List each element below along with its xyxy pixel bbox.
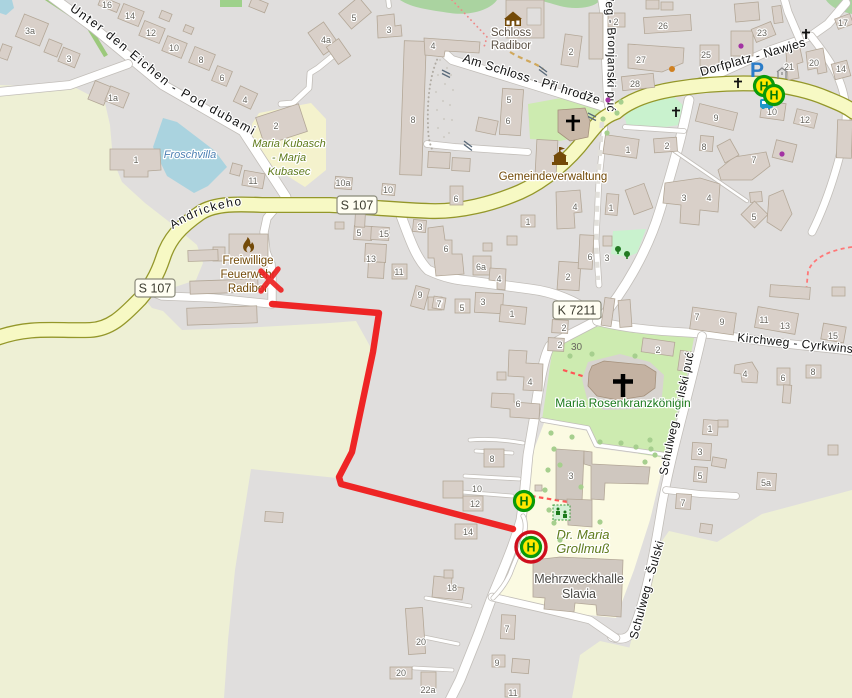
svg-text:Maria Rosenkranzkönigin: Maria Rosenkranzkönigin xyxy=(555,396,690,410)
svg-text:5: 5 xyxy=(356,228,361,238)
svg-text:5a: 5a xyxy=(761,478,771,488)
svg-text:2: 2 xyxy=(565,272,570,282)
svg-text:25: 25 xyxy=(701,50,711,60)
svg-text:15: 15 xyxy=(379,229,389,239)
svg-text:Gemeindeverwaltung: Gemeindeverwaltung xyxy=(499,171,608,183)
svg-text:S 107: S 107 xyxy=(341,199,374,213)
svg-text:6: 6 xyxy=(587,252,592,262)
svg-text:22a: 22a xyxy=(420,685,435,695)
svg-text:S 107: S 107 xyxy=(139,282,172,296)
svg-text:1: 1 xyxy=(525,217,530,227)
svg-text:6: 6 xyxy=(453,194,458,204)
svg-text:20: 20 xyxy=(416,637,426,647)
svg-text:8: 8 xyxy=(198,55,203,65)
svg-text:11: 11 xyxy=(759,315,768,325)
svg-text:23: 23 xyxy=(757,28,767,38)
svg-text:10: 10 xyxy=(169,43,179,53)
svg-text:3: 3 xyxy=(417,222,422,232)
svg-text:1: 1 xyxy=(608,203,613,213)
svg-text:7: 7 xyxy=(436,299,441,309)
svg-text:8: 8 xyxy=(489,454,494,464)
svg-text:4: 4 xyxy=(742,369,747,379)
svg-text:4: 4 xyxy=(527,377,532,387)
svg-text:6: 6 xyxy=(515,399,520,409)
svg-text:10a: 10a xyxy=(335,178,350,188)
svg-text:12: 12 xyxy=(146,28,156,38)
svg-text:1: 1 xyxy=(509,309,514,319)
svg-text:SchlossRadibor: SchlossRadibor xyxy=(491,27,532,52)
svg-text:8: 8 xyxy=(410,115,415,125)
svg-text:6: 6 xyxy=(780,373,785,383)
svg-text:28: 28 xyxy=(630,79,640,89)
svg-text:4a: 4a xyxy=(321,35,331,45)
svg-text:5: 5 xyxy=(351,13,356,23)
svg-text:14: 14 xyxy=(125,11,135,21)
svg-text:3: 3 xyxy=(66,54,71,64)
svg-text:1: 1 xyxy=(625,145,630,155)
svg-text:8: 8 xyxy=(701,142,706,152)
svg-text:5: 5 xyxy=(751,212,756,222)
svg-text:3a: 3a xyxy=(25,26,35,36)
svg-text:18: 18 xyxy=(447,583,457,593)
svg-text:3: 3 xyxy=(568,471,573,481)
svg-text:9: 9 xyxy=(719,317,724,327)
svg-text:4: 4 xyxy=(430,41,435,51)
svg-text:6a: 6a xyxy=(476,262,486,272)
svg-text:10: 10 xyxy=(383,185,393,195)
svg-text:20: 20 xyxy=(809,58,819,68)
svg-text:7: 7 xyxy=(504,624,509,634)
svg-text:4: 4 xyxy=(242,95,247,105)
svg-text:Dr. MariaGrollmuß: Dr. MariaGrollmuß xyxy=(556,527,610,556)
svg-text:17: 17 xyxy=(838,18,848,28)
svg-text:2: 2 xyxy=(613,17,618,27)
svg-text:6: 6 xyxy=(219,73,224,83)
svg-text:H: H xyxy=(519,495,528,509)
svg-text:7: 7 xyxy=(680,498,685,508)
svg-text:3: 3 xyxy=(480,297,485,307)
svg-text:H: H xyxy=(526,541,535,555)
svg-text:30: 30 xyxy=(571,342,583,353)
svg-text:10: 10 xyxy=(472,484,482,494)
svg-text:5: 5 xyxy=(697,471,702,481)
svg-text:K 7211: K 7211 xyxy=(558,304,597,318)
svg-text:7: 7 xyxy=(751,155,756,165)
svg-text:11: 11 xyxy=(394,267,403,277)
svg-text:15: 15 xyxy=(828,331,838,341)
svg-text:8: 8 xyxy=(810,367,815,377)
svg-text:16: 16 xyxy=(102,0,112,10)
svg-text:3: 3 xyxy=(386,25,391,35)
svg-text:2: 2 xyxy=(273,121,278,131)
svg-text:5: 5 xyxy=(506,95,511,105)
svg-text:7: 7 xyxy=(694,312,699,322)
svg-text:11: 11 xyxy=(248,176,257,186)
svg-text:12: 12 xyxy=(470,499,480,509)
svg-text:4: 4 xyxy=(706,193,711,203)
svg-text:9: 9 xyxy=(713,113,718,123)
svg-text:2: 2 xyxy=(568,47,573,57)
svg-text:3: 3 xyxy=(697,447,702,457)
svg-text:6: 6 xyxy=(505,116,510,126)
svg-text:14: 14 xyxy=(463,527,473,537)
svg-text:2: 2 xyxy=(557,340,562,350)
svg-text:9: 9 xyxy=(417,290,422,300)
svg-text:1: 1 xyxy=(707,424,712,434)
svg-text:3: 3 xyxy=(604,253,609,263)
svg-text:1: 1 xyxy=(133,155,138,165)
svg-text:27: 27 xyxy=(636,55,646,65)
svg-text:1a: 1a xyxy=(108,93,118,103)
svg-text:2: 2 xyxy=(655,345,660,355)
svg-text:13: 13 xyxy=(366,254,376,264)
svg-text:4: 4 xyxy=(496,274,501,284)
svg-text:26: 26 xyxy=(658,21,668,31)
svg-text:20: 20 xyxy=(396,668,406,678)
svg-text:14: 14 xyxy=(836,64,846,74)
svg-text:2: 2 xyxy=(561,323,566,333)
svg-text:13: 13 xyxy=(780,321,790,331)
svg-text:3: 3 xyxy=(681,193,686,203)
svg-text:2: 2 xyxy=(664,141,669,151)
svg-text:6: 6 xyxy=(443,244,448,254)
svg-text:9: 9 xyxy=(494,658,499,668)
svg-text:Froschvilla: Froschvilla xyxy=(164,149,217,161)
svg-text:11: 11 xyxy=(508,688,517,698)
svg-text:H: H xyxy=(769,89,778,103)
svg-text:5: 5 xyxy=(459,303,464,313)
svg-text:4: 4 xyxy=(572,202,577,212)
svg-text:12: 12 xyxy=(800,115,810,125)
